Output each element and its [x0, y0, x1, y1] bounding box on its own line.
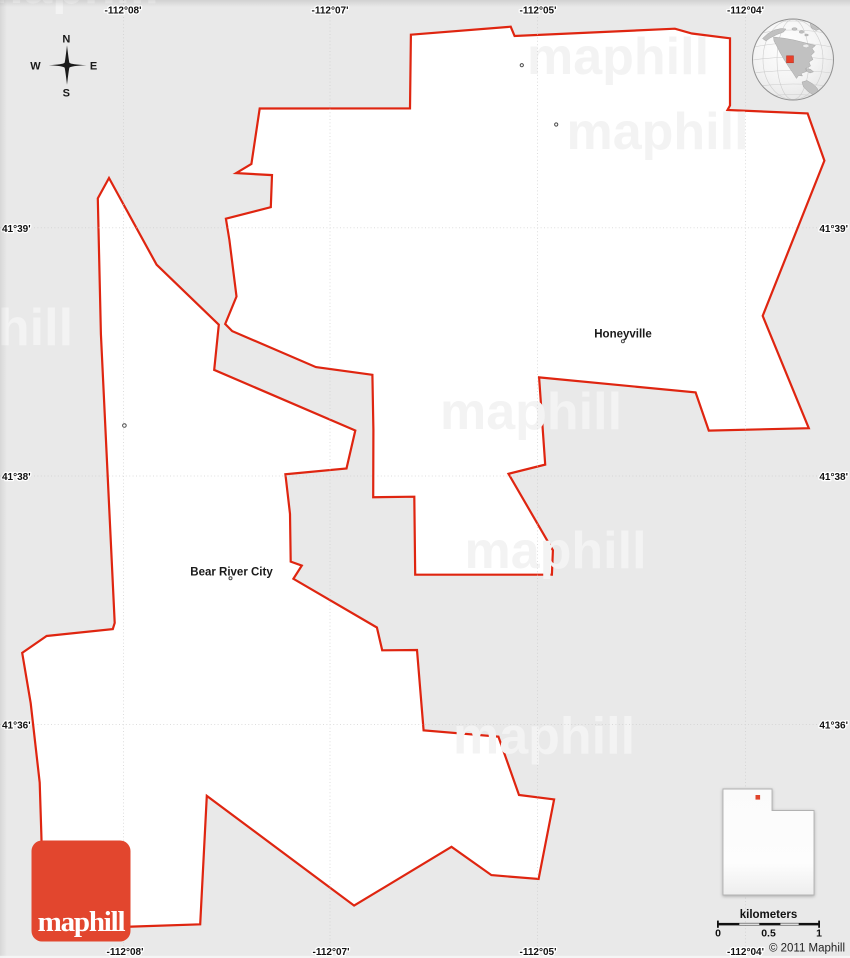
- svg-text:0: 0: [715, 928, 721, 940]
- svg-text:S: S: [63, 88, 70, 100]
- svg-text:-112°05': -112°05': [520, 6, 557, 17]
- svg-text:41°36': 41°36': [819, 721, 848, 732]
- svg-text:1: 1: [816, 928, 822, 940]
- svg-text:W: W: [30, 61, 41, 73]
- svg-text:0.5: 0.5: [761, 928, 776, 940]
- svg-text:41°39': 41°39': [819, 224, 848, 235]
- svg-text:maphill: maphill: [38, 906, 126, 938]
- svg-text:-112°08': -112°08': [105, 6, 142, 17]
- svg-text:N: N: [62, 34, 70, 46]
- svg-text:-112°04': -112°04': [727, 6, 764, 17]
- svg-text:maphill: maphill: [453, 708, 635, 766]
- svg-text:maphill: maphill: [464, 522, 646, 580]
- svg-text:maphill: maphill: [527, 28, 709, 86]
- svg-text:-112°07': -112°07': [312, 6, 349, 17]
- svg-text:41°38': 41°38': [819, 472, 848, 483]
- svg-text:Bear River City: Bear River City: [190, 567, 273, 579]
- svg-text:maphill: maphill: [566, 103, 748, 161]
- svg-text:E: E: [90, 61, 97, 73]
- svg-text:maphill: maphill: [0, 299, 73, 357]
- svg-text:kilometers: kilometers: [740, 909, 798, 921]
- svg-text:maphill: maphill: [440, 383, 622, 441]
- svg-text:Honeyville: Honeyville: [594, 329, 652, 341]
- svg-text:© 2011 Maphill: © 2011 Maphill: [769, 943, 845, 955]
